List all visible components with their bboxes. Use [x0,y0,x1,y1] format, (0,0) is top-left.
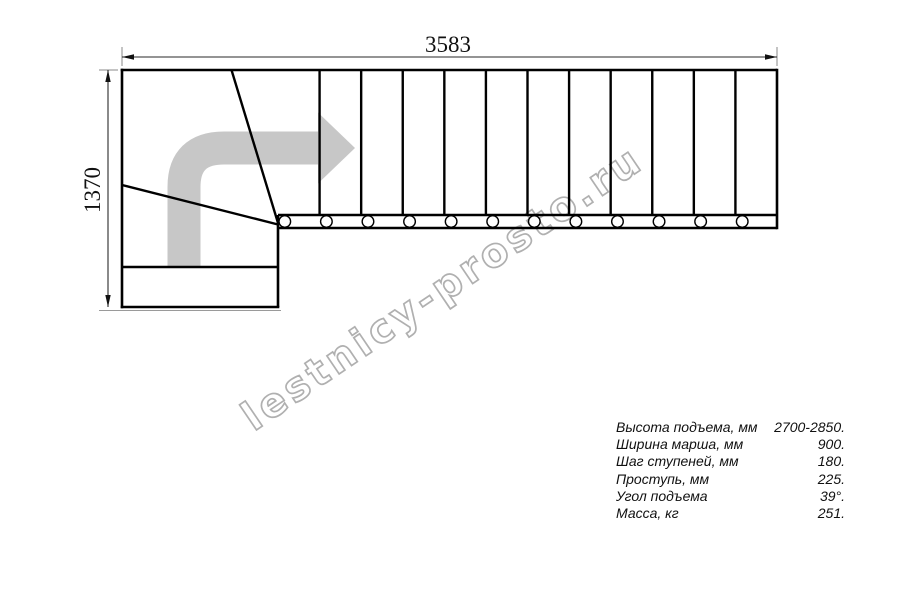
dim-arrow-down [105,295,110,307]
left-dimension-label: 1370 [80,167,105,213]
spec-label: Угол подъема [616,488,708,505]
dim-arrow-left [122,54,134,59]
bolt-circle [321,216,333,228]
spec-value: 900. [818,436,845,453]
walk-direction-arrow [184,113,355,269]
bolt-circle [404,216,416,228]
top-dimension-label: 3583 [425,32,471,57]
spec-row-mass: Масса, кг 251. [616,505,845,522]
watermark-text: lestnicy-prosto.ru [234,136,652,440]
spec-label: Высота подъема, мм [616,419,758,436]
spec-label: Проступь, мм [616,471,709,488]
walk-direction-arrow-shaft [184,148,319,268]
walk-direction-arrow-head [318,113,355,184]
spec-label: Масса, кг [616,505,679,522]
spec-label: Ширина марша, мм [616,436,743,453]
spec-row-tread: Проступь, мм 225. [616,471,845,488]
bolt-circle [279,216,291,228]
dimension-horizontal: 3583 [122,32,777,66]
spec-row-angle: Угол подъема 39°. [616,488,845,505]
dim-arrow-up [105,70,110,82]
specs-table: Высота подъема, мм 2700-2850. Ширина мар… [616,419,845,522]
bolt-circle [570,216,582,228]
bolt-circle [612,216,624,228]
bolt-circle [529,216,541,228]
spec-value: 39°. [820,488,845,505]
spec-value: 225. [818,471,845,488]
bolt-circle [695,216,707,228]
spec-row-flight-width: Ширина марша, мм 900. [616,436,845,453]
tread-divider-lines [320,70,736,215]
bolt-circle [487,216,499,228]
bolt-circle [653,216,665,228]
spec-value: 180. [818,453,845,470]
spec-row-step-pitch: Шаг ступеней, мм 180. [616,453,845,470]
bolt-circle [736,216,748,228]
spec-value: 2700-2850. [774,419,845,436]
spec-value: 251. [818,505,845,522]
bolt-circle [362,216,374,228]
spec-label: Шаг ступеней, мм [616,453,739,470]
spec-row-height: Высота подъема, мм 2700-2850. [616,419,845,436]
bolt-circle [445,216,457,228]
dim-arrow-right [765,54,777,59]
